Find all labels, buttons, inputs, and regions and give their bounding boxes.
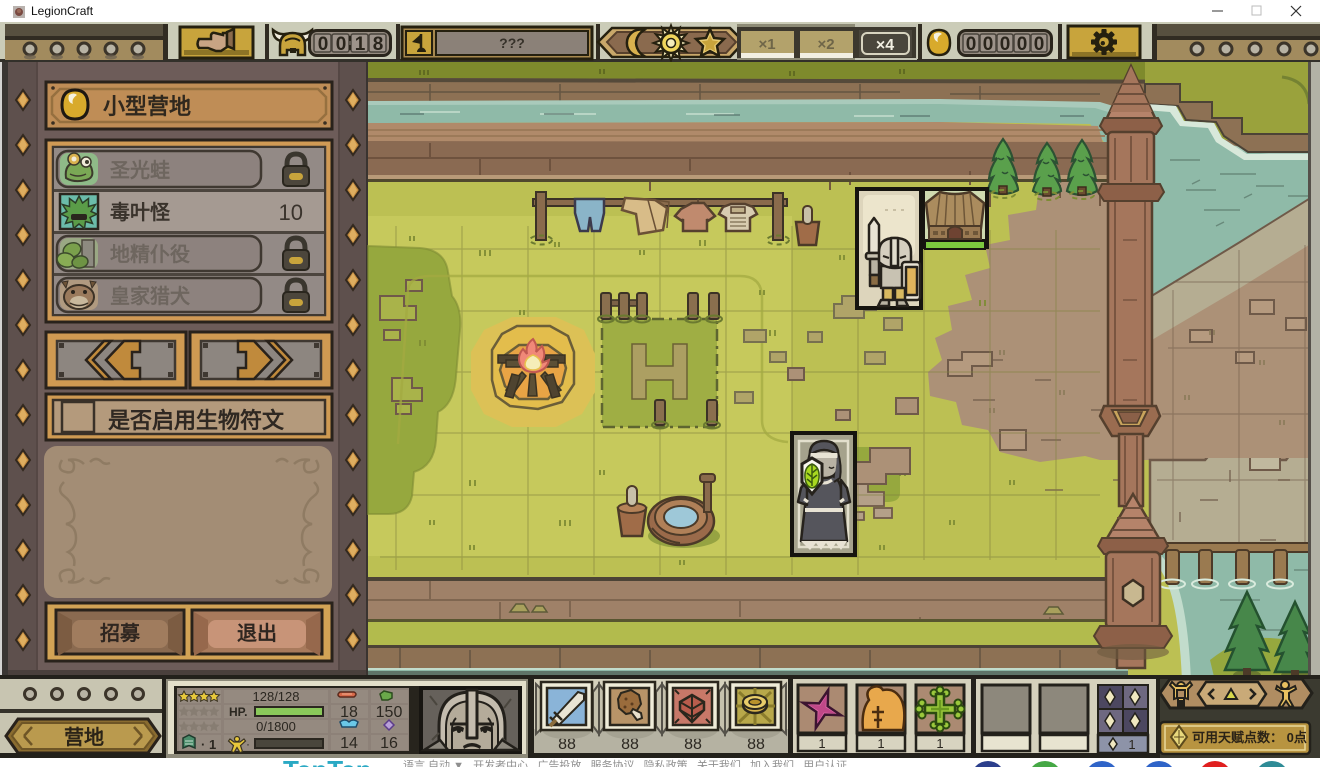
svg-text:1: 1 <box>877 736 884 751</box>
svg-text:地精仆役: 地精仆役 <box>110 242 190 266</box>
svg-text:0: 0 <box>336 34 347 55</box>
svg-text:×4: ×4 <box>876 37 894 54</box>
svg-text:0: 0 <box>1017 34 1028 55</box>
svg-text:×2: ×2 <box>817 36 834 53</box>
svg-text:1: 1 <box>1128 737 1135 752</box>
svg-text:1: 1 <box>936 736 943 751</box>
svg-text:???: ??? <box>499 35 525 51</box>
svg-text:营地: 营地 <box>64 725 104 749</box>
svg-text:0: 0 <box>966 34 977 55</box>
svg-text:16: 16 <box>380 735 398 752</box>
svg-text:150: 150 <box>376 704 403 721</box>
svg-text:18: 18 <box>340 704 358 721</box>
svg-text:10: 10 <box>279 200 303 225</box>
svg-text:皇家猎犬: 皇家猎犬 <box>110 284 191 308</box>
svg-text:1: 1 <box>355 34 366 55</box>
svg-text:14: 14 <box>340 735 358 752</box>
svg-text:1: 1 <box>818 736 825 751</box>
svg-text:·: · <box>246 737 250 751</box>
svg-text:8: 8 <box>373 34 384 55</box>
svg-text:128/128: 128/128 <box>253 689 300 704</box>
svg-text:0: 0 <box>1034 34 1045 55</box>
svg-text:招募: 招募 <box>100 621 141 645</box>
svg-text:可用天赋点数： 0点: 可用天赋点数： 0点 <box>1192 730 1307 745</box>
svg-text:0/1800: 0/1800 <box>256 719 296 734</box>
svg-text:0: 0 <box>983 34 994 55</box>
svg-text:小型营地: 小型营地 <box>103 94 191 119</box>
svg-text:毒叶怪: 毒叶怪 <box>110 200 171 224</box>
svg-text:圣光蛙: 圣光蛙 <box>110 158 170 182</box>
svg-text:· 1: · 1 <box>201 737 216 752</box>
svg-text:HP.: HP. <box>229 705 247 719</box>
svg-text:0: 0 <box>318 34 329 55</box>
svg-text:退出: 退出 <box>237 622 277 645</box>
svg-text:×1: ×1 <box>758 36 775 53</box>
svg-text:0: 0 <box>1000 34 1011 55</box>
svg-text:是否启用生物符文: 是否启用生物符文 <box>108 408 285 433</box>
